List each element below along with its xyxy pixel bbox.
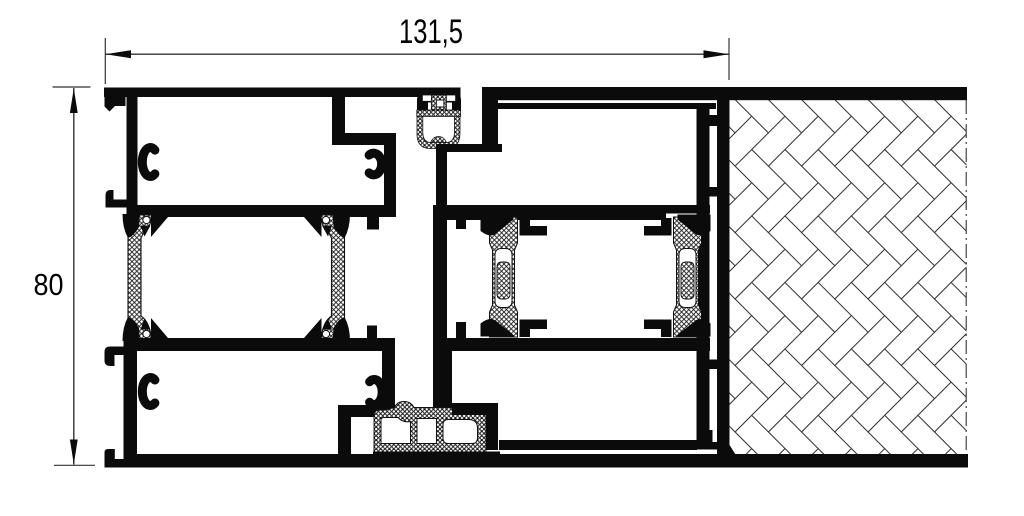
svg-text:80: 80 (34, 267, 64, 302)
svg-text:131,5: 131,5 (399, 13, 463, 51)
